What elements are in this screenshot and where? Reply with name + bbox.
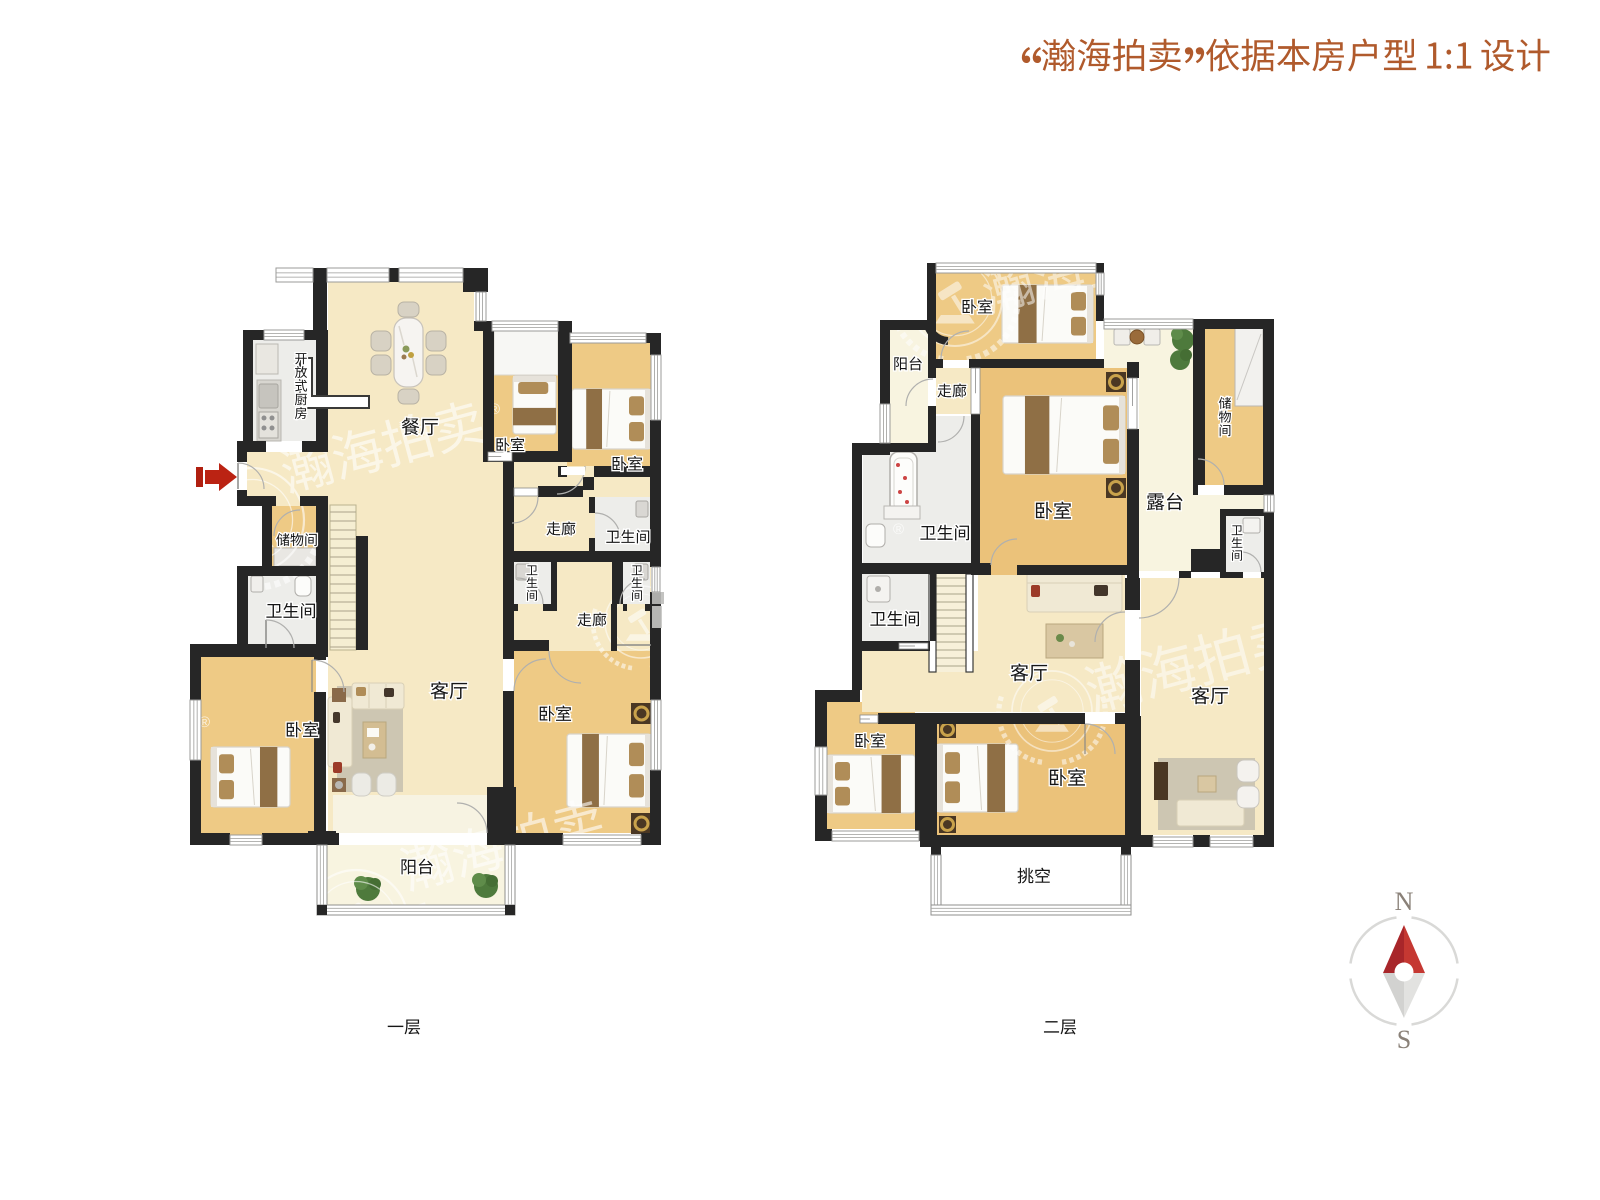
svg-text:S: S — [1397, 1025, 1411, 1054]
svg-text:®: ® — [893, 521, 904, 538]
svg-text:N: N — [1395, 887, 1414, 916]
